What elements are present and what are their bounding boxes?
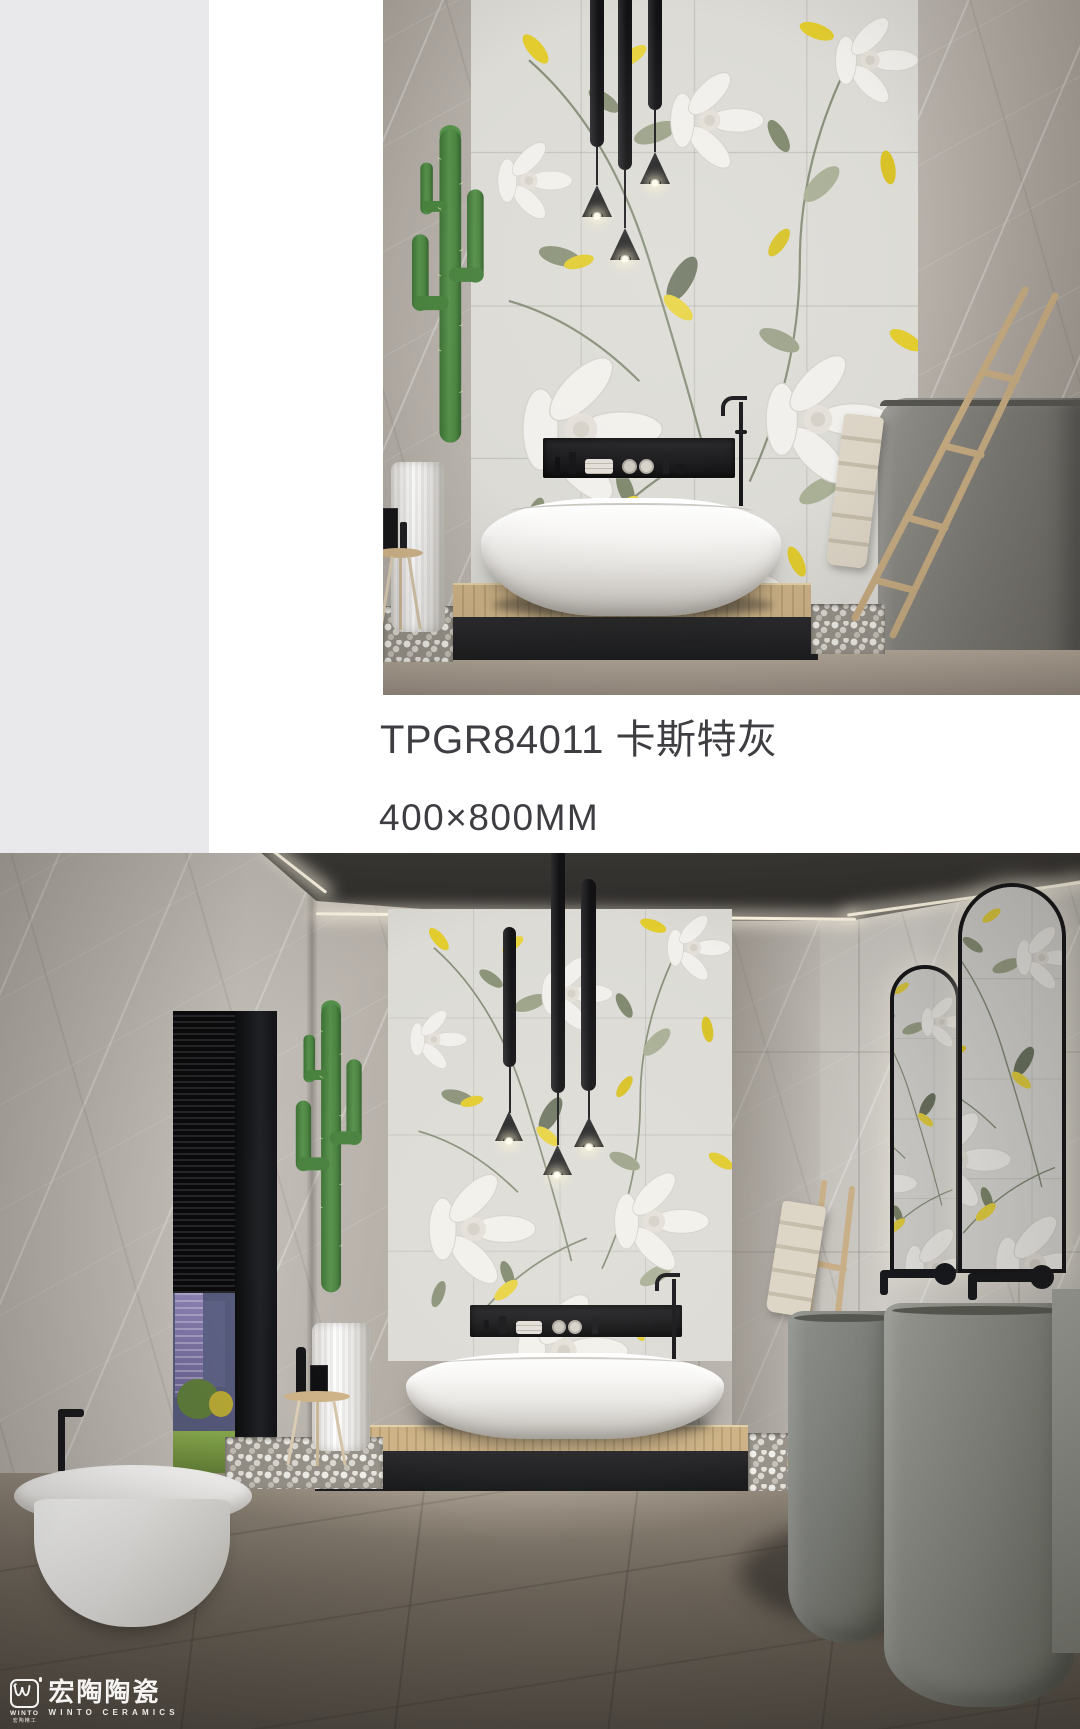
window-blinds — [173, 1011, 235, 1293]
niche-towel-stack — [585, 459, 613, 474]
mirror-reflection — [890, 965, 960, 1273]
product-size: 400×800MM — [379, 799, 599, 836]
niche-bottle — [484, 1320, 489, 1334]
arched-mirror-small — [890, 965, 960, 1273]
brand-name-en: WINTO CERAMICS — [49, 1709, 179, 1717]
left-gray-band — [0, 0, 209, 853]
bidet-faucet — [58, 1409, 65, 1471]
bathtub-rim — [508, 503, 754, 521]
pendant-cable — [588, 1091, 590, 1119]
arched-mirror-large — [958, 883, 1066, 1273]
side-table-leg — [399, 557, 402, 630]
pendant-light-bar — [581, 879, 596, 1091]
wall-faucet-arm — [968, 1273, 1036, 1282]
pendant-glow — [619, 255, 631, 263]
winto-logo-mark-icon — [10, 1679, 39, 1708]
tub-faucet-spout — [655, 1273, 680, 1291]
wall-niche-shelf — [543, 438, 735, 478]
wooden-ladder — [823, 280, 1080, 670]
basin-lip — [892, 1306, 1066, 1315]
mirror-reflection — [958, 883, 1066, 1273]
product-code-name: TPGR84011 卡斯特灰 — [380, 720, 778, 760]
logo-mark-text: WINTO — [10, 1711, 40, 1718]
tub-faucet-pole — [672, 1279, 676, 1359]
brand-text-block: 宏陶陶瓷 WINTO CERAMICS — [49, 1679, 179, 1717]
pendant-glow — [503, 1137, 515, 1145]
tub-faucet-spout — [721, 396, 747, 416]
niche-bottle — [555, 457, 560, 474]
pendant-light-bar — [648, 0, 662, 110]
brand-logo: WINTO 宏陶精工 宏陶陶瓷 WINTO CERAMICS — [10, 1679, 179, 1724]
niche-towel-roll — [639, 459, 654, 474]
niche-towel-roll — [568, 1320, 582, 1334]
pendant-light-bar — [503, 927, 516, 1067]
niche-towel-stack — [516, 1321, 542, 1334]
niche-bottle — [569, 452, 576, 474]
pendant-cable — [557, 1093, 559, 1145]
black-bottle — [296, 1347, 306, 1393]
pendant-cable — [596, 147, 598, 185]
window-frame — [235, 1011, 277, 1477]
city-building — [203, 1301, 225, 1387]
bathtub-rim — [435, 1357, 696, 1372]
pendant-glow — [649, 179, 661, 187]
logo-mark-block: WINTO 宏陶精工 — [10, 1679, 40, 1724]
pendant-glow — [551, 1171, 563, 1179]
black-bottle — [400, 522, 407, 550]
product-photo-top — [383, 0, 1080, 695]
wall-faucet-drop — [880, 1273, 888, 1295]
stool-leg — [316, 1401, 319, 1466]
pendant-light-bar — [590, 0, 604, 147]
basin-lip — [794, 1314, 894, 1322]
wall-faucet-drop — [968, 1277, 977, 1300]
platform-plinth — [448, 611, 818, 660]
pendant-cable — [654, 110, 656, 152]
pendant-glow — [583, 1143, 595, 1151]
bathtub — [406, 1353, 724, 1439]
niche-bottle — [499, 1316, 506, 1334]
tub-faucet-handle — [735, 430, 747, 434]
window — [173, 1011, 277, 1477]
pendant-glow — [591, 212, 603, 220]
stone-pedestal-basin — [884, 1303, 1074, 1707]
cactus-plant — [397, 80, 497, 472]
pendant-cable — [624, 170, 626, 228]
pendant-light-bar — [618, 0, 632, 170]
pendant-cable — [509, 1067, 511, 1113]
logo-mark-sub-cn: 宏陶精工 — [13, 1719, 37, 1724]
niche-bottle — [592, 1317, 598, 1334]
tub-faucet-pole — [739, 402, 743, 506]
product-photo-bottom: WINTO 宏陶精工 宏陶陶瓷 WINTO CERAMICS — [0, 853, 1080, 1729]
cactus-plant — [282, 945, 374, 1333]
bathtub — [481, 498, 781, 616]
niche-bottle — [663, 454, 669, 474]
catalog-page: TPGR84011 卡斯特灰 400×800MM — [0, 0, 1080, 1729]
niche-jar — [678, 464, 685, 474]
diffuser-box — [383, 508, 398, 552]
logo-apostrophe — [39, 1677, 42, 1682]
niche-towel-roll — [622, 459, 637, 474]
tree-yellow — [209, 1391, 233, 1417]
bidet-faucet-spout — [58, 1409, 84, 1417]
stone-slab-edge — [1052, 1289, 1080, 1653]
wall-niche-shelf — [470, 1305, 682, 1337]
wall-faucet-arm — [880, 1270, 940, 1278]
brand-name-cn: 宏陶陶瓷 — [49, 1679, 179, 1705]
niche-towel-roll — [552, 1320, 566, 1334]
pendant-light-bar — [551, 853, 565, 1093]
